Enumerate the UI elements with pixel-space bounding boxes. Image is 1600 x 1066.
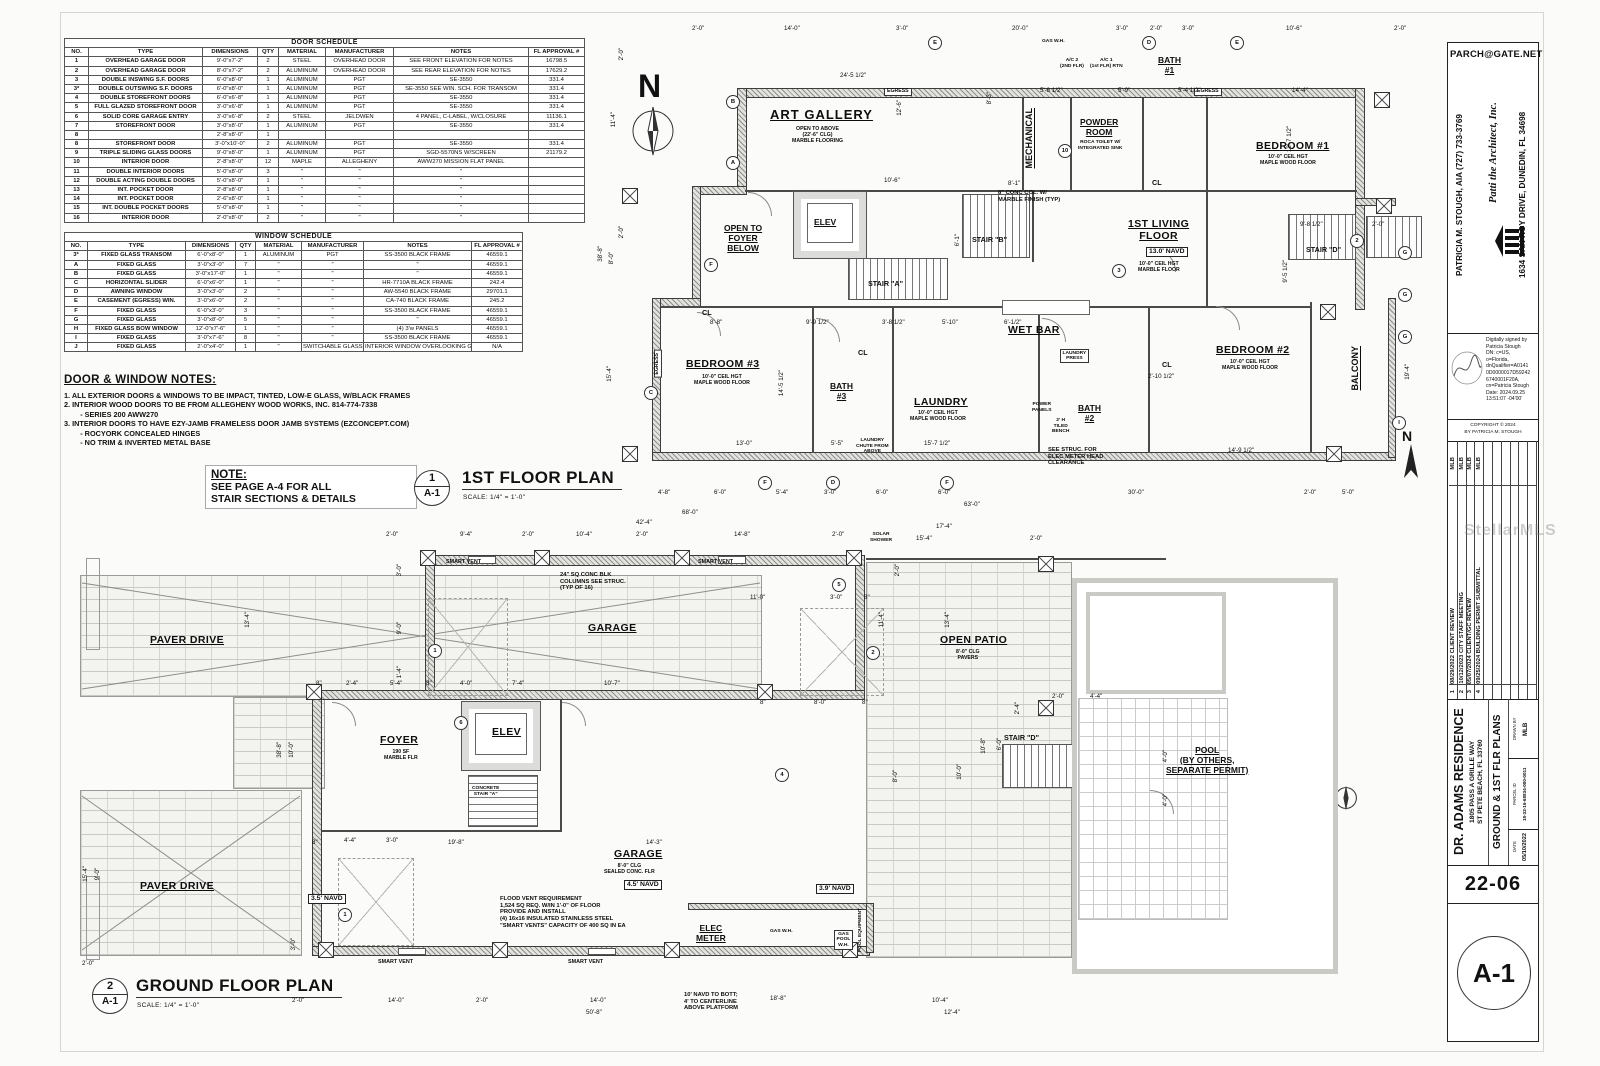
table-row: AFIXED GLASS3'-0"x3'-0"7"""46559.1 xyxy=(65,260,523,269)
dimension-label: 5'-5" xyxy=(831,440,843,447)
schedule-cell xyxy=(279,130,326,139)
schedule-cell: " xyxy=(364,269,472,278)
schedule-header-cell: TYPE xyxy=(89,48,203,57)
dimension-label: 2'-0" xyxy=(476,997,488,1004)
schedule-cell: 3 xyxy=(258,167,279,176)
schedule-cell: 10 xyxy=(65,158,89,167)
room-label: OPEN PATIO xyxy=(940,634,1007,646)
annotation-label: 10' NAVD TO BOTT; 4' TO CENTERLINE ABOVE… xyxy=(684,992,738,1012)
table-row: 5FULL GLAZED STOREFRONT DOOR3'-0"x6'-8"1… xyxy=(65,103,585,112)
revision-column: MLB05/07/2024 CLIENT/GC REVIEW3 xyxy=(1467,441,1476,699)
plan2-number: 2 xyxy=(93,979,127,995)
dimension-label: 11'-0" xyxy=(750,594,765,601)
plan1-number: 1 xyxy=(415,471,449,487)
revision-cell xyxy=(1502,441,1510,486)
schedule-cell: 9 xyxy=(65,149,89,158)
dimension-label: 3'-0" xyxy=(1182,25,1194,32)
revision-table: MLB08/29/2022 CLIENT REVIEW1MLB10/12/202… xyxy=(1449,441,1537,699)
revision-column xyxy=(1484,441,1493,699)
schedule-cell: SE-3550 xyxy=(394,121,529,130)
schedule-header-cell: FL APPROVAL # xyxy=(472,242,523,251)
annotation-label: 8'-0" CLG PAVERS xyxy=(956,650,980,662)
schedule-cell: " xyxy=(256,260,302,269)
revision-cell: 2 xyxy=(1458,685,1466,699)
dimension-label: 2'-0" xyxy=(1394,25,1406,32)
schedule-cell: ALUMINUM xyxy=(279,140,326,149)
parking-bay xyxy=(338,858,414,946)
dimension-label: 2'-0" xyxy=(618,48,625,60)
table-row: HFIXED GLASS BOW WINDOW12'-0"x7'-6"1""(4… xyxy=(65,324,523,333)
column-marker xyxy=(1326,446,1342,462)
room-label: 1ST LIVING FLOOR xyxy=(1128,218,1189,242)
schedule-cell: MAPLE xyxy=(279,158,326,167)
dimension-label: 38'-8" xyxy=(597,246,604,262)
wall-segment xyxy=(652,298,661,461)
schedule-cell: " xyxy=(394,195,529,204)
schedule-cell: 3* xyxy=(65,84,89,93)
dimension-label: 14'-4" xyxy=(1292,87,1308,94)
dimension-label: 6'-1/2" xyxy=(1004,319,1021,326)
schedule-cell: 29701.1 xyxy=(472,288,523,297)
schedule-cell: " xyxy=(302,288,364,297)
schedule-cell: 331.4 xyxy=(529,94,585,103)
schedule-cell: FIXED GLASS xyxy=(88,315,186,324)
schedule-cell: 331.4 xyxy=(529,140,585,149)
dimension-label: 9'-0" xyxy=(396,622,403,634)
reference-tag: G xyxy=(1398,288,1412,302)
revision-text: 10/12/2023 CITY STAFF MEETING xyxy=(1459,592,1465,684)
dimension-label: 14'-9 1/2" xyxy=(1228,447,1254,454)
date-value: 05/10/2022 xyxy=(1522,831,1528,863)
reference-tag: 2 xyxy=(1350,234,1364,248)
schedule-cell: 9'-0"x7'-2" xyxy=(203,57,258,66)
schedule-cell: OVERHEAD GARAGE DOOR xyxy=(89,57,203,66)
schedule-cell xyxy=(529,213,585,222)
dimension-label: 14'-0" xyxy=(388,997,404,1004)
revision-cell xyxy=(1519,486,1527,685)
schedule-cell: PGT xyxy=(326,94,394,103)
dimension-label: 2'-0" xyxy=(1372,221,1384,228)
dimension-label: 2'-0" xyxy=(692,25,704,32)
plan2-title-bubble: 2 A-1 xyxy=(92,978,128,1014)
revision-cell xyxy=(1511,441,1519,486)
dimension-label: 3'-0" xyxy=(386,837,398,844)
annotation-label: OPEN TO ABOVE (22'-6" CLG) MARBLE FLOORI… xyxy=(792,127,843,145)
dimension-label: 2'-0" xyxy=(1304,489,1316,496)
north-arrow-icon xyxy=(1398,444,1424,484)
table-row: 4DOUBLE STOREFRONT DOORS6'-0"x6'-8"1ALUM… xyxy=(65,94,585,103)
dimension-label: 15'-4" xyxy=(606,366,613,382)
property-marker xyxy=(86,876,100,960)
schedule-header-cell: TYPE xyxy=(88,242,186,251)
schedule-cell: SEE FRONT ELEVATION FOR NOTES xyxy=(394,57,529,66)
annotation-label: CONCRETE STAIR "A" xyxy=(472,786,499,797)
dimension-label: 12'-7 1/2" xyxy=(1286,126,1293,152)
watermark: StellarMLS xyxy=(1464,522,1557,540)
column-marker xyxy=(1376,198,1392,214)
table-row: 10INTERIOR DOOR2'-8"x8'-0"12MAPLEALLEGHE… xyxy=(65,158,585,167)
smart-vent-opening xyxy=(588,948,616,955)
schedule-header-cell: QTY xyxy=(236,242,256,251)
schedule-cell xyxy=(326,130,394,139)
plan2-title: GROUND FLOOR PLAN xyxy=(136,976,342,998)
note-line: - SERIES 200 AWW270 xyxy=(64,410,534,419)
reference-tag: E xyxy=(928,36,942,50)
schedule-cell: 8 xyxy=(65,130,89,139)
annotation-label: ROCA TOILET W/ INTEGRATED SINK xyxy=(1078,140,1122,151)
schedule-cell: 2 xyxy=(65,66,89,75)
schedule-cell: 1 xyxy=(258,130,279,139)
schedule-cell: " xyxy=(279,204,326,213)
dimension-label: 6'-1" xyxy=(954,234,961,246)
dimension-label: CL xyxy=(1162,361,1172,369)
dimension-label: 2'-0" xyxy=(82,960,94,967)
table-row: 3DOUBLE INSWING S.F. DOORS6'-0"x8'-0"1AL… xyxy=(65,75,585,84)
table-row: 2OVERHEAD GARAGE DOOR8'-0"x7'-2"2ALUMINU… xyxy=(65,66,585,75)
schedule-cell: 2 xyxy=(258,213,279,222)
schedule-cell: 1 xyxy=(236,269,256,278)
schedule-cell: 1 xyxy=(258,103,279,112)
schedule-cell: B xyxy=(65,269,88,278)
dimension-label: 4'-0" xyxy=(460,680,472,687)
column-marker xyxy=(664,942,680,958)
schedule-cell xyxy=(89,130,203,139)
schedule-cell: 2 xyxy=(258,66,279,75)
dimension-label: 10'-7" xyxy=(604,680,620,687)
table-row: 14INT. POCKET DOOR2'-6"x8'-0"1""" xyxy=(65,195,585,204)
schedule-cell: 331.4 xyxy=(529,84,585,93)
digital-signature-text: Digitally signed by Patricia Stough DN: … xyxy=(1486,337,1538,403)
architect-name: PATRICIA M. STOUGH, AIA (727) 733-3769 xyxy=(1455,64,1464,326)
dimension-label: 2'-0" xyxy=(894,564,901,576)
drawn-by-label: DRAWN BY xyxy=(1512,702,1517,756)
dimension-label: 5'-4" xyxy=(390,680,402,687)
dimension-label: 30'-0" xyxy=(1128,489,1144,496)
dimension-label: 14'-0" xyxy=(590,997,606,1004)
dimension-label: 11'-4" xyxy=(878,612,885,627)
revision-cell xyxy=(1493,486,1501,685)
title-block-divider xyxy=(1508,699,1509,865)
schedule-cell: 3'-0"x6'-8" xyxy=(203,112,258,121)
concrete-stair-a xyxy=(468,775,538,827)
schedule-cell: " xyxy=(326,186,394,195)
schedule-cell: " xyxy=(394,186,529,195)
room-label: BATH #2 xyxy=(1078,404,1101,424)
schedule-cell: " xyxy=(302,269,364,278)
schedule-cell: 2'-0"x8'-0" xyxy=(203,213,258,222)
schedule-cell: " xyxy=(279,176,326,185)
revision-column xyxy=(1493,441,1502,699)
wall-segment xyxy=(312,690,865,700)
schedule-cell: 1 xyxy=(236,343,256,352)
schedule-cell: (4) 3'w PANELS xyxy=(364,324,472,333)
revision-cell xyxy=(1502,486,1510,685)
revision-column: MLB10/12/2023 CITY STAFF MEETING2 xyxy=(1458,441,1467,699)
annotation-label: 8" CONC COL. W/ MARBLE FINISH (TYP) xyxy=(998,190,1060,203)
room-label: GARAGE xyxy=(588,622,637,634)
wall-segment xyxy=(692,186,701,306)
schedule-cell: 6'-0"x8'-0" xyxy=(203,75,258,84)
dimension-label: 8'-0" xyxy=(608,252,615,264)
dimension-label: 42'-4" xyxy=(636,519,652,526)
dimension-label: 63'-0" xyxy=(964,501,980,508)
column-marker xyxy=(318,942,334,958)
dimension-label: 2'-0" xyxy=(386,531,398,538)
firm-name: Patti the Architect, Inc. xyxy=(1488,78,1500,228)
annotation-label: 10'-0" CEIL HGT MAPLE WOOD FLOOR xyxy=(1260,155,1316,167)
architect-email: PARCH@GATE.NET xyxy=(1450,49,1536,60)
schedule-cell: ALUMINUM xyxy=(279,75,326,84)
dimension-label: 9'-9 1/2" xyxy=(806,319,829,326)
dimension-label: 2'-0" xyxy=(292,997,304,1004)
schedule-cell: 1 xyxy=(258,176,279,185)
dimension-label: 10'-6" xyxy=(884,177,900,184)
schedule-cell: 11136.1 xyxy=(529,112,585,121)
schedule-cell: J xyxy=(65,343,88,352)
reference-tag: 3 xyxy=(1112,264,1126,278)
schedule-cell: 6'-0"x3'-0" xyxy=(186,306,236,315)
schedule-cell: FIXED GLASS xyxy=(88,269,186,278)
schedule-cell: " xyxy=(326,213,394,222)
revision-cell xyxy=(1484,441,1492,486)
schedule-cell: 12'-0"x7'-6" xyxy=(186,324,236,333)
table-row: 7STOREFRONT DOOR3'-0"x8'-0"1ALUMINUMPGTS… xyxy=(65,121,585,130)
dimension-label: 4'-4" xyxy=(1090,693,1102,700)
dimension-label: 20'-0" xyxy=(1012,25,1028,32)
dimension-label: 3'-0" xyxy=(396,564,403,576)
dimension-label: 8'-0" xyxy=(892,770,899,782)
schedule-cell: 3'-0"x8'-0" xyxy=(203,121,258,130)
revision-cell xyxy=(1528,685,1536,699)
revision-cell: MLB xyxy=(1467,441,1475,486)
signature-icon xyxy=(1450,346,1484,390)
parcel-value: 18-32-16-68834-000-0011 xyxy=(1522,760,1527,828)
dimension-label: 14'-3" xyxy=(646,839,662,846)
dimension-label: 2'-0" xyxy=(1030,535,1042,542)
paver-diagonal-lines xyxy=(80,790,302,956)
schedule-cell: " xyxy=(256,334,302,343)
dimension-label: 2'-0" xyxy=(832,531,844,538)
parcel-label: PARCEL ID xyxy=(1512,760,1517,828)
dimension-label: 3'-0" xyxy=(290,938,297,950)
schedule-cell: TRIPLE SLIDING GLASS DOORS xyxy=(89,149,203,158)
column-marker xyxy=(534,550,550,566)
dimension-label: STAIR "A" xyxy=(868,280,903,288)
schedule-cell: " xyxy=(302,278,364,287)
schedule-cell: 3'-0"x3'-0" xyxy=(186,288,236,297)
dimension-label: 8" xyxy=(426,680,432,687)
plan2-sheet-ref: A-1 xyxy=(102,995,118,1009)
schedule-cell: 7 xyxy=(236,260,256,269)
title-block-divider xyxy=(1488,699,1489,865)
dimension-label: 8'-8" xyxy=(710,319,722,326)
partition-wall xyxy=(812,308,814,453)
annotation-label: GAS W.H. xyxy=(770,929,793,935)
schedule-cell: 5 xyxy=(65,103,89,112)
schedule-cell: INTERIOR DOOR xyxy=(89,213,203,222)
table-row: FFIXED GLASS6'-0"x3'-0"3""SS-3500 BLACK … xyxy=(65,306,523,315)
schedule-cell xyxy=(529,186,585,195)
schedule-cell: HR-7710A BLACK FRAME xyxy=(364,278,472,287)
dimension-label: 3'-0" xyxy=(830,594,842,601)
schedule-cell: " xyxy=(279,195,326,204)
column-marker xyxy=(492,942,508,958)
schedule-cell: 21179.2 xyxy=(529,149,585,158)
dimension-label: CL xyxy=(1152,179,1162,187)
schedule-cell xyxy=(529,167,585,176)
schedule-cell: 8'-0"x7'-2" xyxy=(203,66,258,75)
revision-cell xyxy=(1493,441,1501,486)
table-row: 6SOLID CORE GARAGE ENTRY3'-0"x6'-8"2STEE… xyxy=(65,112,585,121)
schedule-cell: 13 xyxy=(65,186,89,195)
schedule-cell: E xyxy=(65,297,88,306)
revision-cell xyxy=(1528,441,1536,486)
annotation-label: EGRESS xyxy=(884,88,912,96)
schedule-cell: ALUMINUM xyxy=(279,149,326,158)
schedule-header-cell: NO. xyxy=(65,48,89,57)
annotation-label: 10'-0" CEIL HGT MARBLE FLOOR xyxy=(1138,262,1180,274)
schedule-cell: 5'-0"x8'-0" xyxy=(203,204,258,213)
schedule-cell: " xyxy=(256,288,302,297)
schedule-cell: INTERIOR WINDOW OVERLOOKING GALLERY xyxy=(364,343,472,352)
partition-wall xyxy=(1070,98,1072,190)
dimension-label: 14'-0" xyxy=(784,25,800,32)
schedule-cell: 14 xyxy=(65,195,89,204)
dimension-label: 6'-0" xyxy=(996,738,1003,750)
annotation-label: 190 SF MARBLE FLR xyxy=(384,750,418,762)
reference-tag: G xyxy=(1398,246,1412,260)
schedule-header-cell: MANUFACTURER xyxy=(326,48,394,57)
schedule-cell: ALUMINUM xyxy=(279,121,326,130)
dimension-label: 6'-0" xyxy=(938,489,950,496)
room-label: BEDROOM #2 xyxy=(1216,344,1289,356)
dimension-label: 17'-4" xyxy=(936,523,952,530)
schedule-cell: OVERHEAD DOOR xyxy=(326,57,394,66)
annotation-label: POWER PANELS xyxy=(1032,402,1051,413)
schedule-cell: 3'-0"x8'-0" xyxy=(186,315,236,324)
plan2-scale: SCALE: 1/4" = 1'-0" xyxy=(137,1002,199,1009)
schedule-cell: " xyxy=(326,195,394,204)
title-block-divider xyxy=(1447,903,1539,904)
revision-cell: 08/29/2022 CLIENT REVIEW xyxy=(1449,486,1457,685)
annotation-label: A/C 1 (1st FLR) RTN xyxy=(1090,58,1123,69)
dimension-label: 5'-4" xyxy=(776,489,788,496)
reference-tag: F xyxy=(940,476,954,490)
schedule-cell: " xyxy=(302,306,364,315)
dimension-label: 10'-0" xyxy=(288,742,295,758)
schedule-cell: SE-3550 xyxy=(394,75,529,84)
dimension-label: STAIR "D" xyxy=(1306,246,1341,254)
schedule-header-cell: MANUFACTURER xyxy=(302,242,364,251)
annotation-label: 10'-0" CEIL HGT MAPLE WOOD FLOOR xyxy=(910,411,966,423)
schedule-cell: FIXED GLASS xyxy=(88,306,186,315)
architect-address: 1634 SAN ROY DRIVE, DUNEDIN, FL 34698 xyxy=(1518,64,1527,326)
annotation-label: LAUNDRY CHUTE FROM ABOVE xyxy=(856,438,889,455)
wall-segment xyxy=(688,903,872,910)
schedule-cell: " xyxy=(302,260,364,269)
revision-column xyxy=(1511,441,1520,699)
schedule-cell: SGD-5570NS W/SCREEN xyxy=(394,149,529,158)
schedule-cell: STEEL xyxy=(279,57,326,66)
schedule-cell: " xyxy=(326,176,394,185)
door-window-notes: DOOR & WINDOW NOTES: 1. ALL EXTERIOR DOO… xyxy=(64,374,534,448)
schedule-cell: PGT xyxy=(326,103,394,112)
reference-tag: 2 xyxy=(866,646,880,660)
dimension-label: 5'-4 1/2" xyxy=(1178,87,1201,94)
annotation-label: POOL EQUIPMENT xyxy=(858,908,864,952)
schedule-cell: CA-740 BLACK FRAME xyxy=(364,297,472,306)
table-row: 12DOUBLE ACTING DOUBLE DOORS5'-0"x8'-0"1… xyxy=(65,176,585,185)
schedule-cell: INT. POCKET DOOR xyxy=(89,195,203,204)
revision-text: 3 xyxy=(1467,690,1473,693)
schedule-cell: SE-3550 xyxy=(394,103,529,112)
schedule-cell: 2 xyxy=(236,297,256,306)
schedule-cell: PGT xyxy=(326,121,394,130)
reference-tag: 1 xyxy=(428,644,442,658)
schedule-cell: " xyxy=(256,324,302,333)
schedule-title: WINDOW SCHEDULE xyxy=(65,233,523,242)
column-marker xyxy=(757,684,773,700)
schedule-cell: INT. DOUBLE POCKET DOORS xyxy=(89,204,203,213)
schedule-cell: 245.2 xyxy=(472,297,523,306)
column-marker xyxy=(622,446,638,462)
schedule-cell: DOUBLE OUTSWING S.F. DOORS xyxy=(89,84,203,93)
wet-bar-counter xyxy=(1002,300,1090,315)
schedule-cell: FIXED GLASS xyxy=(88,260,186,269)
revision-cell: 3 xyxy=(1467,685,1475,699)
revision-text: 1 xyxy=(1450,690,1456,693)
schedule-cell: DOUBLE INTERIOR DOORS xyxy=(89,167,203,176)
room-label: ELEV xyxy=(814,218,836,228)
dimension-label: 15'-4" xyxy=(916,535,932,542)
title-block-divider xyxy=(1447,865,1539,866)
annotation-label: SMART VENT xyxy=(698,559,733,565)
annotation-label: GAS POOL W.H. xyxy=(834,930,853,950)
table-row: IFIXED GLASS3'-0"x7'-6"8""SS-3500 BLACK … xyxy=(65,334,523,343)
north-label: N xyxy=(638,68,661,105)
schedule-cell: 242.4 xyxy=(472,278,523,287)
wall-segment xyxy=(652,452,1396,461)
schedule-cell: FULL GLAZED STOREFRONT DOOR xyxy=(89,103,203,112)
schedule-cell: STEEL xyxy=(279,112,326,121)
annotation-label: SMART VENT xyxy=(446,559,481,565)
dimension-label: 9'-8 1/2" xyxy=(1300,221,1323,228)
dimension-label: CL xyxy=(702,309,712,317)
schedule-cell: 46559.1 xyxy=(472,269,523,278)
schedule-cell: DOUBLE INSWING S.F. DOORS xyxy=(89,75,203,84)
room-label: POOL (BY OTHERS, SEPARATE PERMIT) xyxy=(1166,746,1248,775)
reference-tag: A xyxy=(726,156,740,170)
room-label: BALCONY xyxy=(1350,346,1360,391)
schedule-cell: ALLEGHENY xyxy=(326,158,394,167)
partition-wall xyxy=(1310,302,1312,453)
patio-edge-line xyxy=(866,558,1166,560)
schedule-cell: 6'-0"x8'-0" xyxy=(203,84,258,93)
table-row: GFIXED GLASS3'-0"x8'-0"5"""46559.1 xyxy=(65,315,523,324)
schedule-cell: 9'-0"x8'-0" xyxy=(203,149,258,158)
dimension-label: 2'-10 1/2" xyxy=(1148,373,1174,380)
dimension-label: STAIR "D" xyxy=(1004,734,1039,742)
schedule-cell: 2 xyxy=(258,112,279,121)
schedule-cell xyxy=(529,130,585,139)
schedule-cell xyxy=(529,176,585,185)
reference-tag: B xyxy=(726,95,740,109)
plan1-scale: SCALE: 1/4" = 1'-0" xyxy=(463,494,525,501)
partition-wall xyxy=(892,308,894,453)
table-row: 1OVERHEAD GARAGE DOOR9'-0"x7'-2"2STEELOV… xyxy=(65,57,585,66)
schedule-cell: 15 xyxy=(65,204,89,213)
annotation-label: SEE STRUC. FOR ELEC METER HEAD CLEARANCE xyxy=(1048,447,1103,467)
